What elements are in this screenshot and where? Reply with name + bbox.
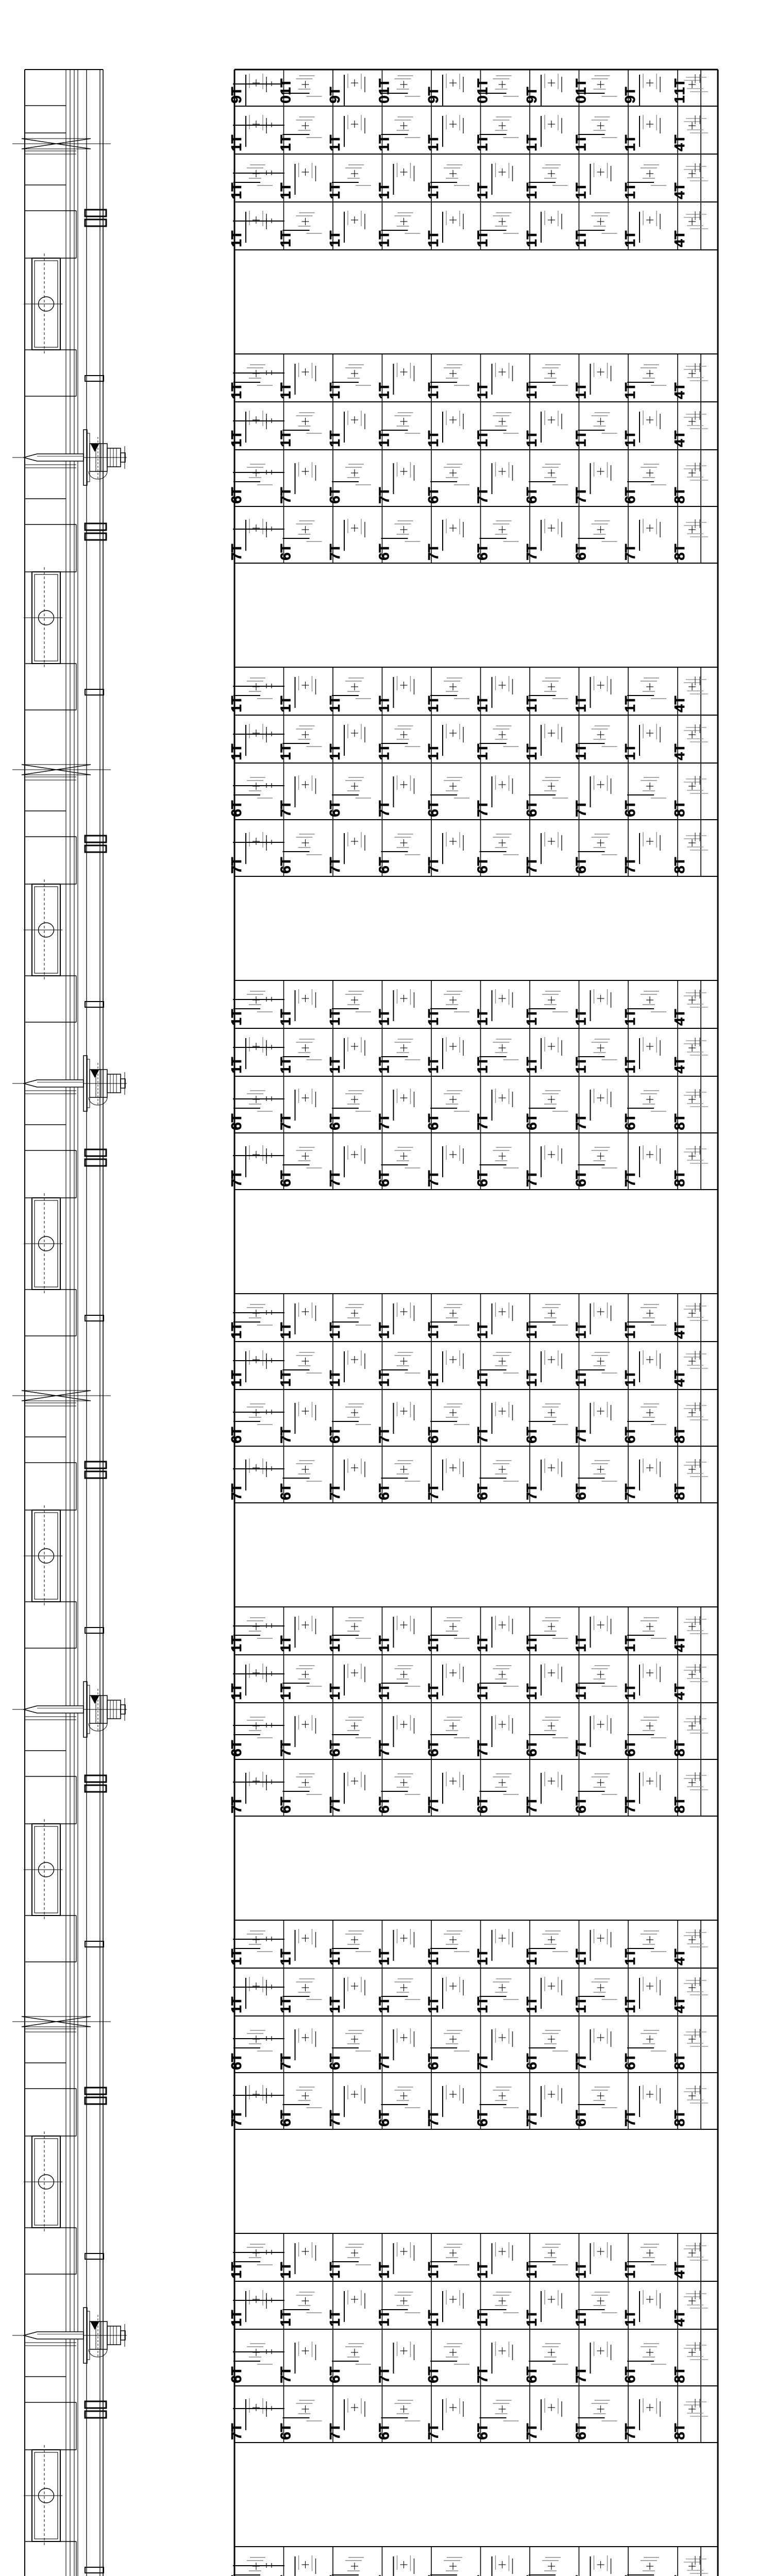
cell-label-char: T [228, 1113, 244, 1122]
plan-cell: T1 [278, 1352, 322, 1387]
desk-symbol [529, 1717, 568, 1738]
cell-label-char: 6 [376, 552, 392, 561]
cell-label-char: T [327, 1170, 343, 1179]
cell-label-char: T [228, 1370, 244, 1379]
cell-label-char: 8 [671, 496, 687, 504]
cell-label-char: T [278, 1740, 294, 1749]
plan-cell: T6 [524, 464, 568, 504]
desk-symbol [541, 1145, 562, 1177]
plan-cell: T6 [622, 2344, 666, 2383]
desk-symbol [591, 163, 611, 195]
cell-label-char: 1 [475, 1692, 491, 1700]
plan-cell: T1 [228, 1977, 284, 2013]
wall-stub [233, 684, 284, 688]
cell-label-char: T [622, 2053, 638, 2062]
plan-cell: T1 [376, 1352, 421, 1387]
cell-label-char: 7 [278, 2062, 294, 2070]
cell-label-char: T [425, 487, 441, 496]
cell-label-char: 6 [425, 2062, 441, 2070]
plan-cell: T4 [671, 1929, 708, 1965]
cell-label-char: 8 [671, 1179, 687, 1187]
desk-symbol [332, 1717, 371, 1738]
cell-label-char: T [671, 430, 687, 439]
plan-cell: T1 [376, 363, 414, 399]
plan-cell: T7 [376, 2342, 414, 2383]
desk-symbol [591, 1929, 611, 1961]
desk-symbol [541, 2290, 562, 2322]
plan-cell: T6 [622, 1717, 666, 1757]
desk-symbol [578, 834, 617, 855]
plan-cell: T1 [475, 1039, 519, 1074]
desk-symbol [684, 1616, 708, 1634]
cell-label-char: T [573, 2110, 589, 2119]
desk-symbol [492, 1402, 513, 1434]
cell-label-char: 1 [524, 2005, 540, 2013]
cell-label-char: T [278, 487, 294, 496]
cell-label-char: T [524, 430, 540, 439]
desk-symbol [443, 724, 463, 756]
desk-symbol [332, 2344, 371, 2364]
wall-stub [233, 81, 284, 86]
cell-label-char: T [573, 134, 589, 143]
plan-cell: T6 [524, 777, 568, 817]
cell-label-char: 1 [327, 1957, 343, 1965]
desk-symbol [541, 2085, 562, 2117]
plan-cell: T1 [278, 363, 316, 399]
cell-label-char: 1 [228, 704, 244, 713]
cell-label-char: T [228, 2366, 244, 2375]
plan-band: T1T1T1T1T1T1T1T1T1T4T1T1T1T1T1T1T1T1T1T4… [228, 980, 718, 1190]
cell-label-char: 1 [228, 439, 244, 447]
desk-symbol [443, 519, 463, 551]
cell-label-char: 1 [278, 1331, 294, 1339]
desk-symbol [492, 775, 513, 807]
cell-label-char: 4 [671, 752, 687, 760]
cell-label-char: 7 [475, 809, 491, 817]
plan-cell: T7 [327, 1145, 365, 1187]
cell-label-char: 7 [228, 2432, 244, 2440]
cell-label-char: T [425, 1683, 441, 1692]
cell-label-char: T [573, 78, 589, 87]
cell-label-char: 1 [278, 1644, 294, 1652]
cell-label-char: T [524, 2310, 540, 2318]
desk-symbol [344, 1350, 365, 1382]
cell-label-char: T [671, 78, 687, 87]
cell-label-char: T [376, 1427, 392, 1435]
desk-symbol [627, 2030, 666, 2051]
desk-symbol [492, 1089, 513, 1121]
cell-label-char: 1 [425, 1644, 441, 1652]
cell-label-char: 4 [671, 1379, 687, 1387]
plan-cell: T6 [475, 1774, 519, 1814]
plan-cell: T7 [622, 2085, 660, 2127]
plan-cell: T1 [327, 411, 365, 447]
cell-label-char: 6 [622, 496, 638, 504]
desk-symbol [295, 1616, 316, 1648]
cell-label-char: T [671, 1635, 687, 1644]
plan-cell: T1 [327, 1664, 365, 1700]
cell-label-char: T [475, 430, 491, 439]
cell-label-char: T [671, 487, 687, 496]
cell-label-char: 1 [622, 143, 638, 151]
cell-label-char: T [228, 1427, 244, 1435]
desk-symbol [430, 1404, 469, 1425]
desk-symbol [443, 1977, 463, 2009]
desk-symbol [295, 1302, 316, 1334]
desk-symbol [591, 2555, 611, 2576]
plan-cell: T8 [671, 776, 708, 817]
cell-label-char: T [425, 743, 441, 752]
plan-cell: T1 [573, 676, 611, 713]
plan-cell: T1 [475, 2242, 513, 2279]
cell-label-char: 7 [425, 1179, 441, 1187]
cell-label-char: T [524, 487, 540, 496]
wall-stub [233, 783, 284, 788]
cell-label-char: T [475, 1740, 491, 1749]
cell-label-char: T [327, 1370, 343, 1379]
plan-cell: T8 [671, 463, 708, 504]
cell-label-char: T [327, 800, 343, 809]
cell-label-char: 6 [376, 1805, 392, 1814]
plan-cell: T7 [524, 1772, 562, 1814]
desk-symbol [480, 1352, 519, 1373]
desk-symbol [430, 2557, 469, 2576]
cell-label-char: T [278, 1797, 294, 1805]
desk-symbol [640, 2085, 660, 2117]
cell-label-char: 1 [524, 391, 540, 399]
cell-label-char: 1 [475, 1957, 491, 1965]
plan-cell: T1 [327, 1304, 371, 1339]
cell-label-char: T [376, 134, 392, 143]
desk-symbol [246, 411, 266, 443]
cell-label-char: 1 [376, 1018, 392, 1026]
desk-symbol [295, 989, 316, 1021]
cell-label-char: 7 [425, 1805, 441, 1814]
desk-symbol [541, 211, 562, 243]
plan-cell: T1 [475, 1929, 513, 1965]
desk-symbol [283, 2087, 322, 2108]
plan-cell: T1 [278, 413, 322, 447]
plan-cell: T1 [475, 213, 519, 247]
plan-cell: T6 [228, 464, 284, 504]
plan-cell: T6 [425, 464, 469, 504]
cell-label-char: T [622, 743, 638, 752]
desk-symbol [381, 1352, 421, 1373]
plan-cell: T1 [524, 2244, 568, 2279]
cell-label-char: T [475, 1057, 491, 1065]
desk-symbol [541, 724, 562, 756]
desk-symbol [591, 2028, 611, 2060]
cell-label-char: 1 [376, 87, 392, 95]
desk-symbol [627, 678, 666, 699]
cell-label-char: 1 [475, 752, 491, 760]
cell-label-char: 6 [228, 2062, 244, 2070]
plan-cell: T7 [376, 2028, 414, 2070]
cell-label-char: 1 [278, 191, 294, 199]
cell-label-char: 1 [376, 2005, 392, 2013]
plan-cell: T1 [278, 1666, 322, 1700]
wall-stub [233, 2093, 284, 2097]
cell-label-char: T [622, 1170, 638, 1179]
cell-label-char: T [573, 230, 589, 239]
desk-symbol [246, 211, 266, 243]
plan-cell: T1 [524, 1664, 562, 1700]
cell-label-char: T [376, 1740, 392, 1749]
cell-label-char: 1 [327, 704, 343, 713]
plan-cell: T1 [228, 1931, 284, 1965]
cell-label-char: 1 [327, 439, 343, 447]
cell-label-char: 6 [475, 2432, 491, 2440]
plan-cell: T6 [228, 2030, 284, 2070]
plan-cell: T6 [425, 1404, 469, 1444]
plan-cell: T1 [524, 724, 562, 760]
plan-cell: T1 [278, 989, 316, 1026]
desk-symbol [627, 165, 666, 185]
plan-cell: T1 [228, 2244, 284, 2279]
desk-symbol [684, 519, 708, 537]
cell-label-char: T [327, 696, 343, 704]
desk-symbol [381, 1666, 421, 1686]
desk-symbol [529, 1931, 568, 1952]
plan-cell: T1 [573, 163, 611, 199]
plan-cell: T6 [573, 2400, 617, 2440]
cell-label-char: 6 [524, 496, 540, 504]
cell-label-char: T [573, 1322, 589, 1331]
desk-symbol [541, 519, 562, 551]
plan-cell: T1 [228, 2290, 284, 2327]
cell-label-char: T [475, 1683, 491, 1692]
cell-label-char: T [376, 182, 392, 191]
cell-label-char: T [573, 1740, 589, 1749]
cell-label-char: 6 [327, 2375, 343, 2383]
plan-cell: T1 [622, 365, 666, 399]
desk-symbol [591, 363, 611, 395]
desk-symbol [684, 463, 708, 480]
cell-label-char: 8 [671, 1122, 687, 1130]
cell-label-char: T [327, 487, 343, 496]
plan-cell: T7 [622, 1145, 660, 1187]
cell-label-char: T [228, 1009, 244, 1018]
desk-symbol [246, 1772, 266, 1804]
desk-symbol [541, 411, 562, 443]
cell-label-char: T [622, 1483, 638, 1492]
desk-symbol [578, 1147, 617, 1168]
plan-cell: T1 [475, 2292, 519, 2327]
cell-label-char: 7 [327, 2119, 343, 2127]
cell-label-char: 1 [376, 2270, 392, 2279]
cell-label-char: T [278, 544, 294, 552]
desk-symbol [480, 1461, 519, 1481]
desk-symbol [295, 1089, 316, 1121]
cell-label-char: 1 [327, 143, 343, 151]
desk-symbol [529, 678, 568, 699]
plan-cell: T1 [425, 411, 463, 447]
cell-label-char: 1 [278, 1692, 294, 1700]
cell-label-char: T [524, 1996, 540, 2005]
cell-label-char: 7 [278, 1749, 294, 1757]
cell-label-char: T [278, 1635, 294, 1644]
plan-cell: T1 [376, 1302, 414, 1339]
cell-label-char: 1 [228, 2270, 244, 2279]
cell-label-char: T [524, 382, 540, 391]
plan-cell: T4 [671, 990, 708, 1026]
cell-label-char: T [425, 2110, 441, 2119]
cell-label-char: 7 [475, 1122, 491, 1130]
desk-symbol [430, 365, 469, 385]
desk-symbol [295, 163, 316, 195]
cell-label-char: T [376, 1483, 392, 1492]
desk-symbol [684, 724, 708, 742]
cell-label-char: T [228, 1170, 244, 1179]
cell-label-char: 1 [327, 191, 343, 199]
cell-label-char: T [475, 182, 491, 191]
desk-symbol [394, 1302, 414, 1334]
cell-label-char: T [524, 87, 540, 95]
cell-label-char: T [228, 487, 244, 496]
desk-symbol [246, 724, 266, 756]
cell-label-char: 6 [622, 1122, 638, 1130]
cell-label-char: 1 [228, 1379, 244, 1387]
cell-label-char: 1 [228, 391, 244, 399]
cell-label-char: 7 [573, 1122, 589, 1130]
cell-label-char: T [573, 182, 589, 191]
cell-label-char: T [425, 382, 441, 391]
cell-label-char: 8 [671, 809, 687, 817]
plan-cell: T7 [228, 832, 284, 874]
plan-cell: T1 [622, 678, 666, 713]
plan-cell: T1 [622, 1350, 660, 1387]
cell-label-char: T [278, 857, 294, 866]
cell-label-char: T [327, 182, 343, 191]
cell-label-char: T [327, 2053, 343, 2062]
desk-symbol [578, 1774, 617, 1794]
plan-cell: T1 [573, 1039, 617, 1074]
cell-label-char: T [475, 1483, 491, 1492]
cell-label-char: 1 [425, 2005, 441, 2013]
cell-label-char: T [622, 800, 638, 809]
plan-cell: T6 [524, 1404, 568, 1444]
cell-label-char: 6 [622, 2375, 638, 2383]
desk-symbol [394, 2555, 414, 2576]
cell-label-char: T [278, 800, 294, 809]
cell-label-char: 1 [327, 2270, 343, 2279]
cell-label-char: T [278, 743, 294, 752]
plan-cell: T4 [671, 1616, 708, 1652]
cell-label-char: 1 [327, 752, 343, 760]
cell-label-char: T [228, 544, 244, 552]
cell-label-char: 4 [671, 1065, 687, 1074]
desk-symbol [480, 2087, 519, 2108]
desk-symbol [529, 2557, 568, 2576]
cell-label-char: T [425, 1996, 441, 2005]
plan-cell: T4 [671, 2556, 708, 2576]
cell-label-char: 1 [278, 1018, 294, 1026]
cell-label-char: T [228, 1948, 244, 1957]
desk-symbol [332, 1404, 371, 1425]
cell-label-char: T [524, 1170, 540, 1179]
cell-label-char: T [327, 743, 343, 752]
desk-symbol [591, 676, 611, 708]
plan-cell: T1 [376, 1616, 414, 1652]
cell-label-char: 7 [425, 1492, 441, 1500]
cell-label-char: T [327, 1113, 343, 1122]
cell-label-char: T [524, 134, 540, 143]
cell-label-char: T [425, 800, 441, 809]
desk-symbol [344, 519, 365, 551]
desk-symbol [578, 521, 617, 541]
plan-cell: T1 [524, 991, 568, 1026]
cell-label-char: T [573, 1057, 589, 1065]
cell-label-char: T [327, 1683, 343, 1692]
cell-label-char: T [622, 1057, 638, 1065]
desk-symbol [381, 1979, 421, 1999]
plan-cell: T1 [327, 211, 365, 247]
plan-cell: T1 [228, 1037, 284, 1074]
plan-cell: T4 [671, 363, 708, 399]
plan-cell: T7 [573, 2342, 611, 2383]
desk-symbol [492, 2028, 513, 2060]
plan-cell: T6 [327, 464, 371, 504]
cell-label-char: T [425, 1322, 441, 1331]
desk-symbol [591, 1402, 611, 1434]
cell-label-char: T [475, 696, 491, 704]
cell-label-char: T [278, 1009, 294, 1018]
cell-label-char: T [475, 2110, 491, 2119]
desk-symbol [344, 1037, 365, 1069]
plan-cell: T1 [376, 413, 421, 447]
cell-label-char: T [671, 1370, 687, 1379]
cell-label-char: T [278, 430, 294, 439]
plan-cell: T4 [671, 1977, 708, 2013]
plan-cell: T4 [671, 1038, 708, 1074]
desk-symbol [295, 363, 316, 395]
plan-cell: T1 [524, 365, 568, 399]
desk-symbol [640, 1459, 660, 1490]
desk-symbol [394, 2242, 414, 2274]
cell-label-char: T [376, 2310, 392, 2318]
cell-label-char: T [671, 1057, 687, 1065]
cell-label-char: 1 [475, 1018, 491, 1026]
plan-cell: T1 [376, 1039, 421, 1074]
plan-cell: T6 [524, 1717, 568, 1757]
cell-label-char: 1 [228, 239, 244, 247]
desk-symbol [246, 1664, 266, 1696]
desk-symbol [381, 117, 421, 138]
desk-symbol [591, 2342, 611, 2374]
plan-cell: T1 [524, 2557, 568, 2576]
plan-cell: T7 [278, 2028, 316, 2070]
desk-symbol [541, 74, 562, 106]
desk-symbol [430, 1931, 469, 1952]
plan-cell: T1 [376, 1979, 421, 2013]
cell-label-char: T [524, 1113, 540, 1122]
cell-label-char: 1 [524, 239, 540, 247]
cell-label-char: 1 [475, 704, 491, 713]
cell-label-char: 1 [671, 87, 687, 95]
cell-label-char: 0 [573, 95, 589, 104]
desk-symbol [684, 1303, 708, 1320]
cell-label-char: T [622, 1996, 638, 2005]
desk-symbol [627, 464, 666, 485]
plan-cell: T7 [425, 519, 463, 561]
cell-label-char: 1 [376, 439, 392, 447]
desk-symbol [443, 832, 463, 864]
plan-cell: T8 [671, 1402, 708, 1444]
cell-label-char: 4 [671, 2270, 687, 2279]
cell-label-char: T [524, 182, 540, 191]
cell-label-char: 1 [425, 1331, 441, 1339]
cell-label-char: 7 [425, 2432, 441, 2440]
